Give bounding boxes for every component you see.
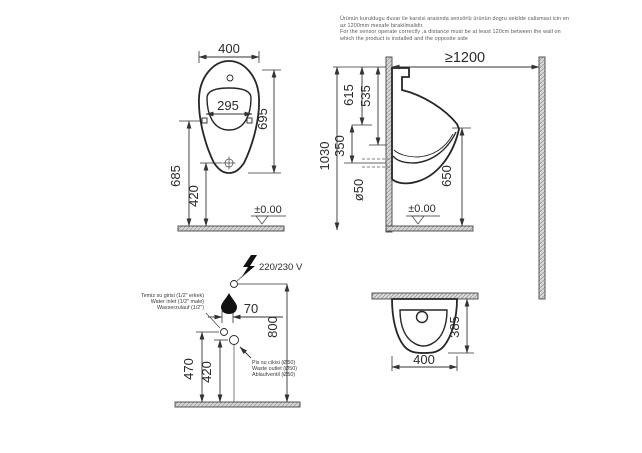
front-floor-level: ±0.00 bbox=[254, 204, 281, 216]
floor-section-side bbox=[386, 226, 473, 231]
urinal-body-outline bbox=[199, 61, 259, 173]
top-view: 385 400 bbox=[372, 293, 478, 371]
note-line-en-1: For the sensor operate correctly ,a dist… bbox=[340, 29, 640, 36]
water-inlet-point bbox=[221, 329, 228, 336]
dim-side-drain-offset: 350 bbox=[332, 135, 347, 157]
floor-section-front bbox=[178, 226, 284, 231]
front-view: 400 295 695 685 420 ±0.00 bbox=[168, 41, 286, 231]
dim-min-wall-distance: ≥1200 bbox=[445, 50, 485, 66]
wall-section-right bbox=[539, 57, 545, 299]
voltage-label: 220/230 V bbox=[259, 262, 303, 273]
dim-front-overall-height: 695 bbox=[255, 108, 270, 130]
side-view: ≥1200 1030 615 535 350 ø50 650 ±0.00 bbox=[317, 50, 545, 299]
lightning-icon bbox=[241, 255, 257, 278]
electric-connection-point bbox=[231, 281, 238, 288]
dim-top-depth: 385 bbox=[447, 316, 462, 338]
technical-drawing-sheet: 400 295 695 685 420 ±0.00 bbox=[0, 0, 642, 453]
dim-drain-diameter: ø50 bbox=[351, 179, 366, 201]
note-line-tr-1: Ürünün kuruldugu duvar ile karsisi arasi… bbox=[340, 16, 640, 23]
installation-note: Ürünün kuruldugu duvar ile karsisi arasi… bbox=[340, 16, 640, 42]
note-line-tr-2: az 1200mm mesafe birakilmalidir. bbox=[340, 23, 640, 30]
dim-horizontal-offset: 70 bbox=[244, 301, 258, 316]
waste-outlet-label-de: Ablaufventil (Ø50) bbox=[252, 372, 295, 378]
dim-top-width: 400 bbox=[413, 352, 435, 367]
dim-front-drain-height: 420 bbox=[186, 185, 201, 207]
dim-inlet-height: 470 bbox=[181, 358, 196, 380]
dim-front-bowl-width: 295 bbox=[217, 98, 239, 113]
dim-outlet-height: 420 bbox=[199, 361, 214, 383]
urinal-installation-drawing: 400 295 695 685 420 ±0.00 bbox=[0, 0, 642, 453]
dim-side-overall-height: 1030 bbox=[317, 142, 332, 171]
installation-detail-view: 220/230 V 800 70 Temiz su girisi (1/2" e… bbox=[141, 255, 303, 407]
water-drop-icon bbox=[221, 293, 237, 314]
side-floor-level: ±0.00 bbox=[408, 203, 435, 215]
floor-section-detail bbox=[175, 402, 300, 407]
dim-side-inlet: 615 bbox=[341, 84, 356, 106]
dim-front-overall-width: 400 bbox=[218, 41, 240, 56]
note-line-en-2: which the product is installed and the o… bbox=[340, 36, 640, 43]
waste-outlet-point bbox=[230, 336, 239, 345]
dim-side-electric: 535 bbox=[358, 85, 373, 107]
datum-level-icon-front bbox=[251, 216, 286, 224]
dim-rim-height: 650 bbox=[439, 165, 454, 187]
datum-level-icon-side bbox=[406, 216, 440, 224]
water-inlet-label-de: Wasserzulauf (1/2") bbox=[157, 305, 204, 311]
dim-front-spreader-height: 685 bbox=[168, 165, 183, 187]
dim-electric-height: 800 bbox=[265, 316, 280, 338]
